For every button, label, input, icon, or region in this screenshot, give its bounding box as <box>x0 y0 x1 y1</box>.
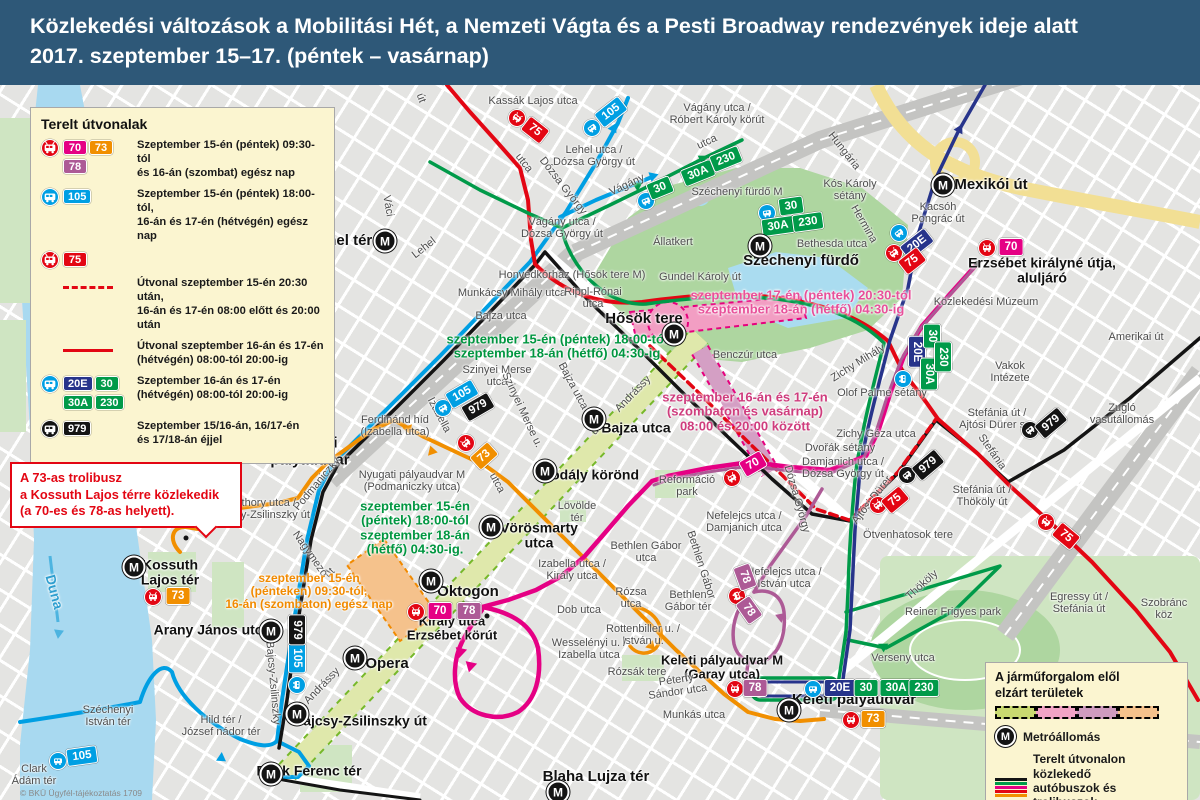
mauve-swatch <box>1077 706 1118 719</box>
legend-row: Útvonal szeptember 16-án és 17-én (hétvé… <box>41 339 324 367</box>
legend-row-text: Szeptember 15-én (péntek) 18:00-tól, 16-… <box>137 187 324 243</box>
route-badge: 78 <box>63 159 87 174</box>
legend-row: 75 <box>41 250 324 269</box>
route-badge: 30 <box>95 376 119 391</box>
legend-row: 105Szeptember 15-én (péntek) 18:00-tól, … <box>41 187 324 243</box>
diverted-lines-label: Terelt útvonalon közlekedő autóbuszok és… <box>1033 752 1178 800</box>
copyright-note: © BKÜ Ügyfél-tájékoztatás 1709 <box>20 788 142 798</box>
legend-row: 707378Szeptember 15-én (péntek) 09:30-tó… <box>41 138 324 180</box>
legend-row: 979Szeptember 15/16-án, 16/17-én és 17/1… <box>41 419 324 447</box>
green-swatch <box>995 706 1036 719</box>
legend-row-text: Szeptember 15-én (péntek) 09:30-tól és 1… <box>137 138 324 180</box>
trolleybus-icon <box>41 251 59 269</box>
route-badge: 30A <box>63 395 93 410</box>
closed-areas-title: A járműforgalom elől elzárt területek <box>995 670 1178 701</box>
callout-text: A 73-as trolibusz a Kossuth Lajos térre … <box>20 470 232 520</box>
route-badge: 979 <box>63 421 91 436</box>
route-badge: 73 <box>89 140 113 155</box>
legend-title: Terelt útvonalak <box>41 116 324 132</box>
legend-row: Útvonal szeptember 15-én 20:30 után, 16-… <box>41 276 324 332</box>
legend-row: 20E3030A230Szeptember 16-án és 17-én (hé… <box>41 374 324 412</box>
map-page: Lehel térMexikói útNyugati pályaudvarHős… <box>0 0 1200 800</box>
closed-area-swatches <box>995 706 1178 719</box>
map-key-legend: A járműforgalom elől elzárt területek M … <box>985 662 1188 800</box>
route-badge: 20E <box>63 376 93 391</box>
route-badge: 70 <box>63 140 87 155</box>
route-badge: 75 <box>63 252 87 267</box>
legend-row-text: Útvonal szeptember 15-én 20:30 után, 16-… <box>137 276 324 332</box>
dashed-line-sample <box>63 286 113 289</box>
legend-rows: 707378Szeptember 15-én (péntek) 09:30-tó… <box>41 138 324 447</box>
bus-icon <box>41 375 59 393</box>
pink-swatch <box>1036 706 1077 719</box>
orange-swatch <box>1118 706 1159 719</box>
route-badge: 105 <box>63 189 91 204</box>
bus-icon <box>41 188 59 206</box>
closed-area-andrassy <box>287 336 700 772</box>
legend-row-text: Szeptember 16-án és 17-én (hétvégén) 08:… <box>137 374 288 402</box>
route-badge: 230 <box>95 395 123 410</box>
trolleybus-73-callout: A 73-as trolibusz a Kossuth Lajos térre … <box>10 462 242 528</box>
legend-row-text: Útvonal szeptember 16-án és 17-én (hétvé… <box>137 339 324 367</box>
closed-area-dozsa <box>700 350 770 472</box>
metro-icon: M <box>995 726 1016 747</box>
title-line-1: Közlekedési változások a Mobilitási Hét,… <box>30 0 1200 41</box>
title-line-2: 2017. szeptember 15–17. (péntek – vasárn… <box>30 41 1200 71</box>
solid-line-sample <box>63 349 113 352</box>
diverted-routes-legend: Terelt útvonalak 707378Szeptember 15-én … <box>30 107 335 464</box>
metro-station-label: Metróállomás <box>1023 730 1100 744</box>
legend-row-text: Szeptember 15/16-án, 16/17-én és 17/18-á… <box>137 419 299 447</box>
trolleybus-icon <box>41 139 59 157</box>
route-lines-icon <box>995 778 1027 798</box>
night-bus-icon <box>41 420 59 438</box>
title-bar: Közlekedési változások a Mobilitási Hét,… <box>0 0 1200 85</box>
